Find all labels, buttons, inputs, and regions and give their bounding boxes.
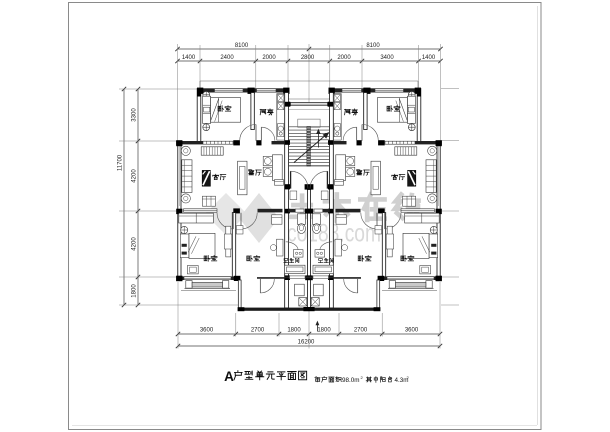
svg-text:98.0m: 98.0m bbox=[342, 377, 360, 384]
svg-text:2000: 2000 bbox=[262, 55, 276, 61]
svg-text:3600: 3600 bbox=[405, 328, 419, 334]
svg-text:2400: 2400 bbox=[220, 55, 234, 61]
svg-text:2800: 2800 bbox=[301, 55, 315, 61]
svg-text:1800: 1800 bbox=[132, 284, 138, 298]
svg-text:3300: 3300 bbox=[132, 108, 138, 122]
svg-text:8100: 8100 bbox=[366, 43, 380, 49]
svg-text:4200: 4200 bbox=[132, 237, 138, 251]
svg-text:8100: 8100 bbox=[235, 43, 249, 49]
svg-text:3600: 3600 bbox=[200, 328, 214, 334]
svg-text:16200: 16200 bbox=[298, 340, 315, 346]
svg-text:1800: 1800 bbox=[287, 328, 301, 334]
svg-text:1800: 1800 bbox=[317, 328, 331, 334]
svg-text:A: A bbox=[224, 369, 234, 384]
svg-text:2700: 2700 bbox=[354, 328, 368, 334]
svg-text:2700: 2700 bbox=[251, 328, 265, 334]
svg-text:4200: 4200 bbox=[132, 169, 138, 183]
svg-text:11700: 11700 bbox=[118, 154, 124, 171]
svg-text:2000: 2000 bbox=[337, 55, 351, 61]
svg-text:3400: 3400 bbox=[380, 55, 394, 61]
svg-text:1400: 1400 bbox=[182, 55, 196, 61]
svg-text:1400: 1400 bbox=[422, 55, 436, 61]
